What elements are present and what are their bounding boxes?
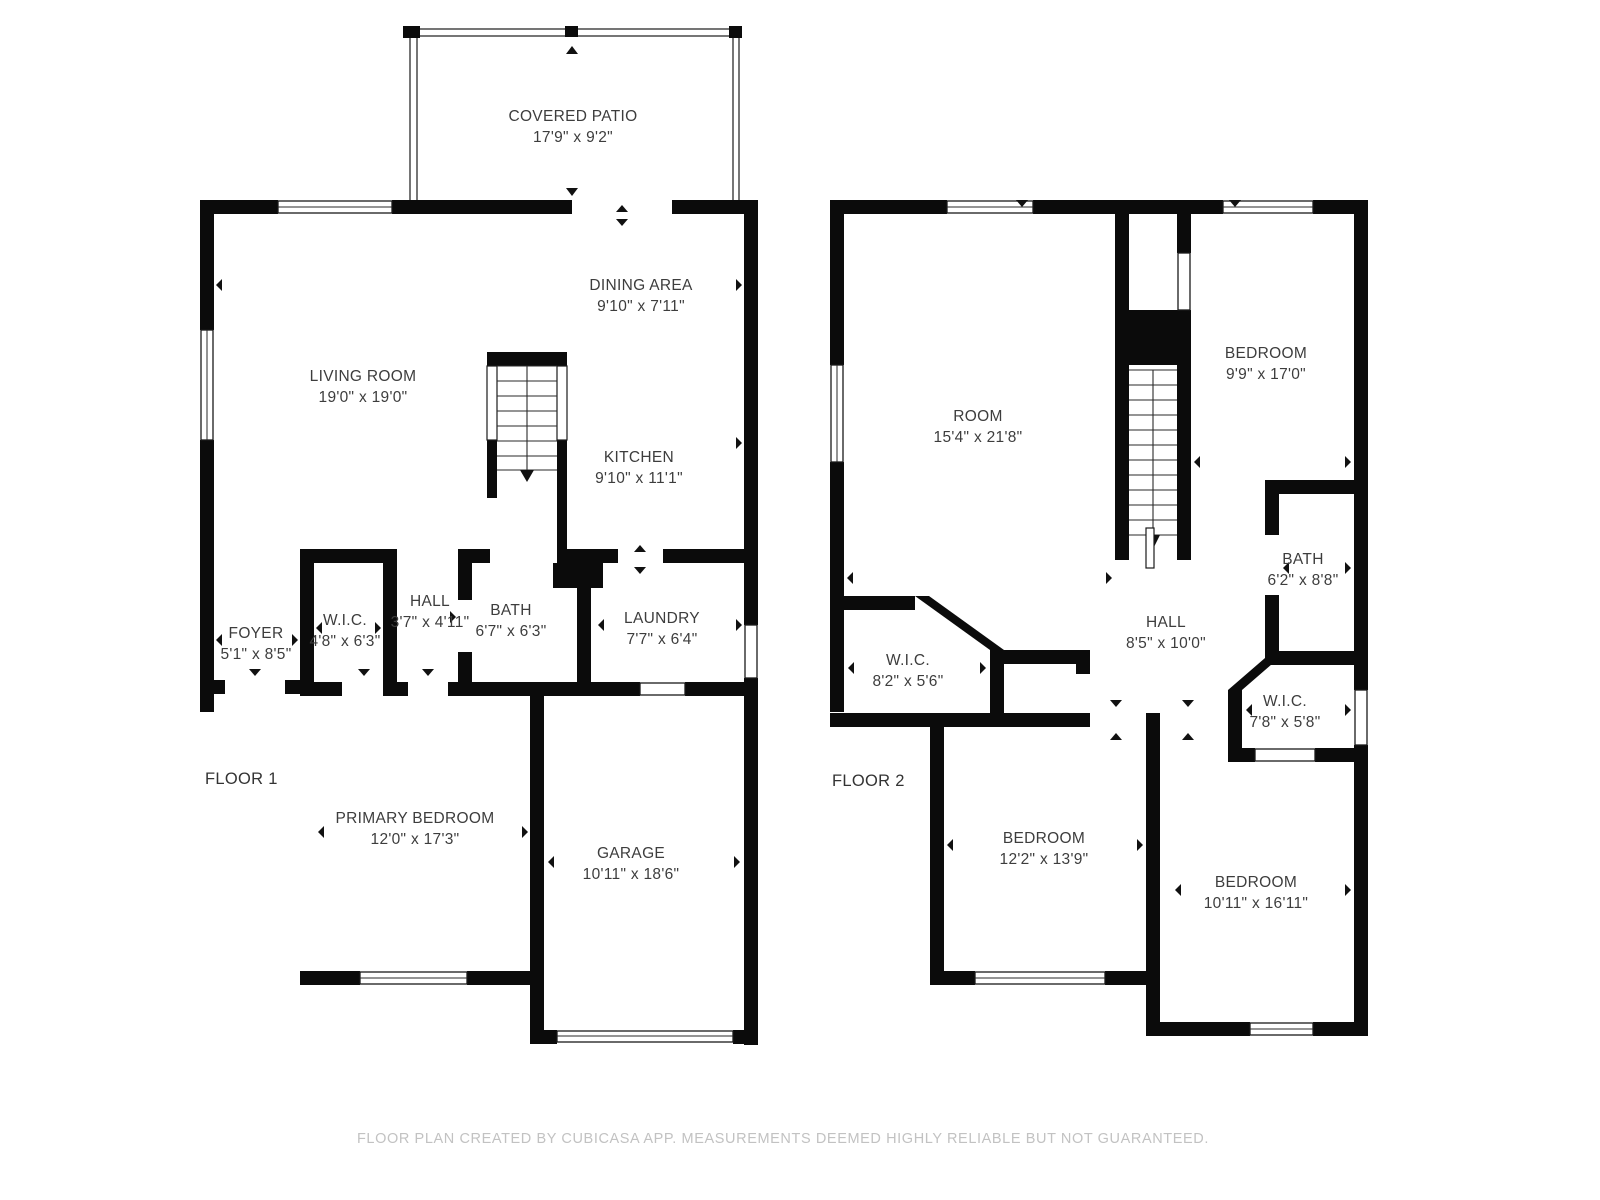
room-name-wic-f2-left: W.I.C. — [886, 652, 930, 669]
room-name-foyer: FOYER — [229, 625, 284, 642]
window — [640, 683, 685, 695]
room-dims-hall-f2: 8'5" x 10'0" — [1126, 635, 1206, 652]
room-dims-bath-f2: 6'2" x 8'8" — [1267, 572, 1338, 589]
floor1-stairs — [487, 366, 567, 482]
room-dims-dining-area: 9'10" x 7'11" — [597, 298, 685, 315]
floor2-label: FLOOR 2 — [832, 772, 905, 790]
room-dims-bath-f1: 6'7" x 6'3" — [475, 623, 546, 640]
room-name-covered-patio: COVERED PATIO — [508, 108, 637, 125]
room-dims-wic-f2-left: 8'2" x 5'6" — [872, 673, 943, 690]
room-name-hall-f1: HALL — [410, 593, 450, 610]
room-dims-laundry: 7'7" x 6'4" — [626, 631, 697, 648]
room-dims-wic-f1: 4'8" x 6'3" — [309, 633, 380, 650]
room-dims-covered-patio: 17'9" x 9'2" — [533, 129, 613, 146]
room-name-living-room: LIVING ROOM — [310, 368, 417, 385]
floor2-ticks — [847, 200, 1351, 896]
room-name-bath-f1: BATH — [490, 602, 531, 619]
floor1-plan: COVERED PATIO 17'9" x 9'2" LIVING ROOM 1… — [200, 26, 758, 1045]
window — [1355, 690, 1367, 745]
stairs-down-arrow — [520, 470, 534, 482]
footer-disclaimer: FLOOR PLAN CREATED BY CUBICASA APP. MEAS… — [357, 1131, 1209, 1147]
room-name-bedroom-3: BEDROOM — [1215, 874, 1297, 891]
window — [1255, 749, 1315, 761]
room-dims-bedroom-1: 9'9" x 17'0" — [1226, 366, 1306, 383]
room-dims-primary-bedroom: 12'0" x 17'3" — [371, 831, 460, 848]
room-name-primary-bedroom: PRIMARY BEDROOM — [336, 810, 495, 827]
stair-rail — [1146, 528, 1154, 568]
floor2-plan: ROOM 15'4" x 21'8" BEDROOM 9'9" x 17'0" … — [830, 200, 1368, 1036]
room-name-laundry: LAUNDRY — [624, 610, 700, 627]
floor-plan-canvas: COVERED PATIO 17'9" x 9'2" LIVING ROOM 1… — [0, 0, 1600, 1200]
room-name-bedroom-1: BEDROOM — [1225, 345, 1307, 362]
floor1-label: FLOOR 1 — [205, 770, 278, 788]
room-name-room: ROOM — [953, 408, 1002, 425]
room-dims-kitchen: 9'10" x 11'1" — [595, 470, 683, 487]
patio-post — [565, 26, 578, 37]
room-name-bath-f2: BATH — [1282, 551, 1323, 568]
room-dims-wic-f2-right: 7'8" x 5'8" — [1249, 714, 1320, 731]
room-name-bedroom-2: BEDROOM — [1003, 830, 1085, 847]
room-name-hall-f2: HALL — [1146, 614, 1186, 631]
stair-landing-door — [1178, 253, 1190, 310]
room-dims-living-room: 19'0" x 19'0" — [319, 389, 408, 406]
patio-post — [729, 26, 742, 38]
room-dims-room: 15'4" x 21'8" — [934, 429, 1023, 446]
window — [745, 625, 757, 678]
patio-post — [403, 26, 420, 38]
room-dims-hall-f1: 3'7" x 4'11" — [391, 614, 470, 631]
room-dims-bedroom-3: 10'11" x 16'11" — [1204, 895, 1308, 912]
floor-plan-page: COVERED PATIO 17'9" x 9'2" LIVING ROOM 1… — [0, 0, 1600, 1200]
room-dims-bedroom-2: 12'2" x 13'9" — [1000, 851, 1089, 868]
room-name-dining-area: DINING AREA — [589, 277, 693, 294]
room-name-wic-f2-right: W.I.C. — [1263, 693, 1307, 710]
floor2-stairs — [1129, 370, 1177, 568]
room-name-kitchen: KITCHEN — [604, 449, 674, 466]
room-name-wic-f1: W.I.C. — [323, 612, 367, 629]
room-dims-garage: 10'11" x 18'6" — [583, 866, 680, 883]
room-name-garage: GARAGE — [597, 845, 665, 862]
room-dims-foyer: 5'1" x 8'5" — [220, 646, 291, 663]
